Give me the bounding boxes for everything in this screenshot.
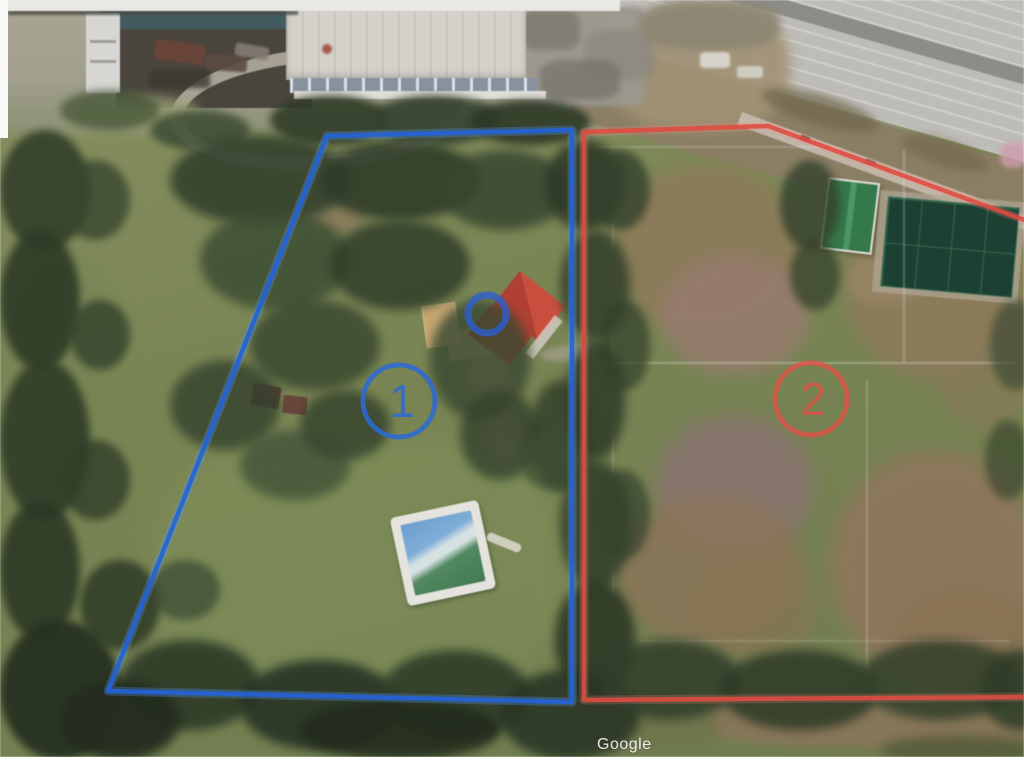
terrain-blob	[0, 500, 80, 640]
terrain-blob	[330, 220, 470, 310]
terrain-blob	[90, 60, 116, 63]
terrain-blob	[80, 560, 160, 650]
terrain-blob	[300, 700, 500, 757]
terrain-blob	[0, 230, 80, 370]
terrain-blob	[200, 210, 350, 310]
terrain-blob	[150, 70, 210, 88]
terrain-blob	[520, 10, 580, 50]
photo-edge-strip	[0, 0, 8, 138]
photo-top-light-band	[0, 0, 620, 11]
terrain-blob	[720, 650, 880, 730]
terrain-blob	[60, 90, 160, 130]
terrain-blob	[866, 380, 868, 680]
terrain-blob	[590, 362, 1015, 364]
terrain-blob	[204, 54, 247, 73]
terrain-blob	[660, 255, 810, 375]
terrain-blob	[470, 100, 590, 145]
terrain-blob	[600, 640, 740, 720]
terrain-blob	[780, 160, 840, 250]
bottom-white-bar	[0, 757, 1024, 768]
terrain-blob	[590, 150, 650, 230]
terrain-blob	[595, 470, 650, 560]
terrain-blob	[60, 440, 130, 520]
swimming-pool	[390, 500, 497, 607]
terrain-blob	[700, 560, 820, 660]
terrain-blob	[700, 52, 730, 68]
terrain-blob	[640, 0, 780, 50]
google-watermark: Google	[597, 736, 652, 754]
terrain-blob	[60, 160, 130, 240]
tennis-courts	[880, 196, 1019, 297]
terrain-blob	[322, 44, 332, 54]
pool-water	[400, 510, 485, 595]
terrain-blob	[250, 300, 380, 390]
listing-aerial-image: 1 2 Google	[0, 0, 1024, 768]
terrain-blob	[592, 146, 822, 148]
satellite-photo	[0, 0, 1024, 757]
terrain-blob	[903, 150, 905, 362]
terrain-blob	[790, 240, 840, 310]
terrain-blob	[60, 680, 180, 757]
warehouse-roof	[286, 8, 526, 80]
terrain-blob	[600, 300, 650, 390]
terrain-blob	[70, 300, 130, 370]
terrain-blob	[150, 110, 250, 150]
white-building	[86, 13, 120, 93]
terrain-blob	[240, 430, 350, 500]
terrain-blob	[150, 560, 220, 620]
terrain-blob	[540, 60, 620, 100]
terrain-blob	[985, 420, 1024, 500]
terrain-blob	[1000, 142, 1024, 168]
terrain-blob	[737, 66, 763, 78]
terrain-blob	[90, 40, 116, 43]
